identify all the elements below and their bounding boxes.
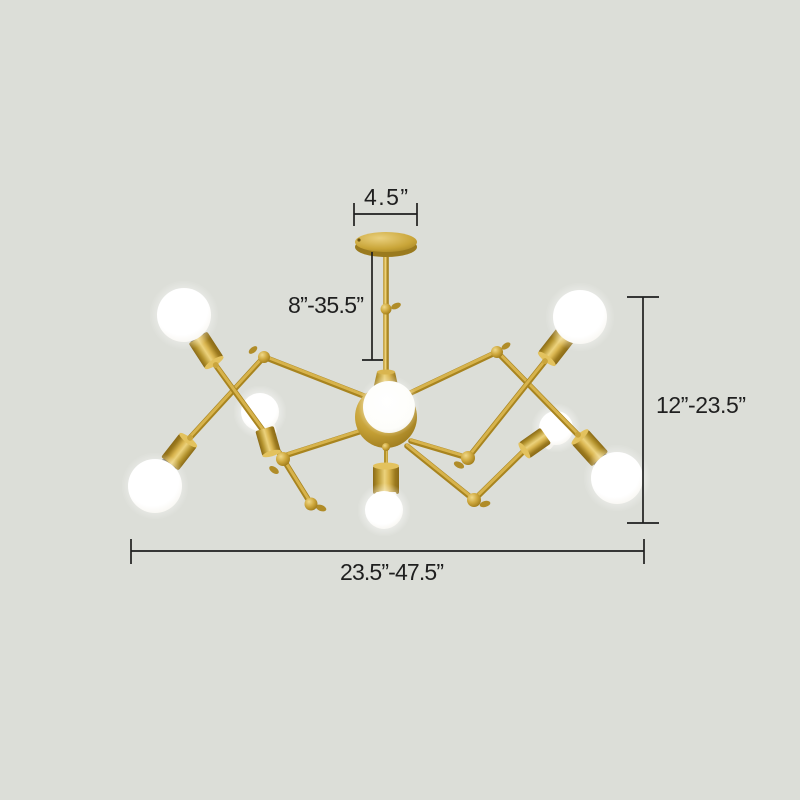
canopy-width-label: 4.5” bbox=[364, 184, 408, 210]
dimension-annotations: 4.5” 8”-35.5” 12”-23.5” 23.5”-47.5” bbox=[131, 184, 746, 585]
dim-drop-height: 8”-35.5” bbox=[288, 252, 383, 360]
dim-fixture-width: 23.5”-47.5” bbox=[131, 539, 644, 585]
arm-rod bbox=[281, 430, 362, 457]
bulb-globe bbox=[157, 288, 211, 342]
bulb-globe bbox=[363, 381, 415, 433]
chandelier bbox=[121, 232, 651, 537]
chandelier-diagram: 4.5” 8”-35.5” 12”-23.5” 23.5”-47.5” bbox=[0, 0, 800, 800]
bulb-globe bbox=[365, 491, 403, 529]
canopy bbox=[355, 232, 417, 257]
drop-height-label: 8”-35.5” bbox=[288, 292, 364, 318]
product-dimension-image: 4.5” 8”-35.5” 12”-23.5” 23.5”-47.5” bbox=[0, 0, 800, 800]
wing-nut bbox=[390, 301, 402, 311]
arm-rod bbox=[283, 458, 311, 504]
glass-ball-bulb bbox=[358, 375, 420, 437]
fixture-height-label: 12”-23.5” bbox=[656, 392, 746, 418]
arm-rod bbox=[264, 356, 374, 400]
elbow-joint bbox=[467, 493, 491, 508]
wing-nut bbox=[268, 464, 280, 475]
bulb-globe bbox=[553, 290, 607, 344]
dim-canopy-width: 4.5” bbox=[354, 184, 417, 226]
elbow-joint bbox=[491, 341, 512, 358]
bulb-top-left bbox=[149, 280, 219, 350]
arm-rod bbox=[474, 447, 527, 500]
wing-nut bbox=[247, 345, 258, 356]
fixture-width-label: 23.5”-47.5” bbox=[340, 559, 444, 585]
bulb-bottom-right bbox=[583, 444, 651, 512]
pendant-joint bbox=[382, 443, 390, 451]
bulb-globe bbox=[591, 452, 643, 504]
bulb-top-right bbox=[545, 282, 615, 352]
bulb-bottom-left bbox=[121, 452, 189, 520]
canopy-screw bbox=[357, 238, 360, 241]
elbow-joint bbox=[305, 498, 328, 513]
bulb-globe bbox=[128, 459, 182, 513]
bottom-pendant-bulb bbox=[357, 443, 411, 537]
